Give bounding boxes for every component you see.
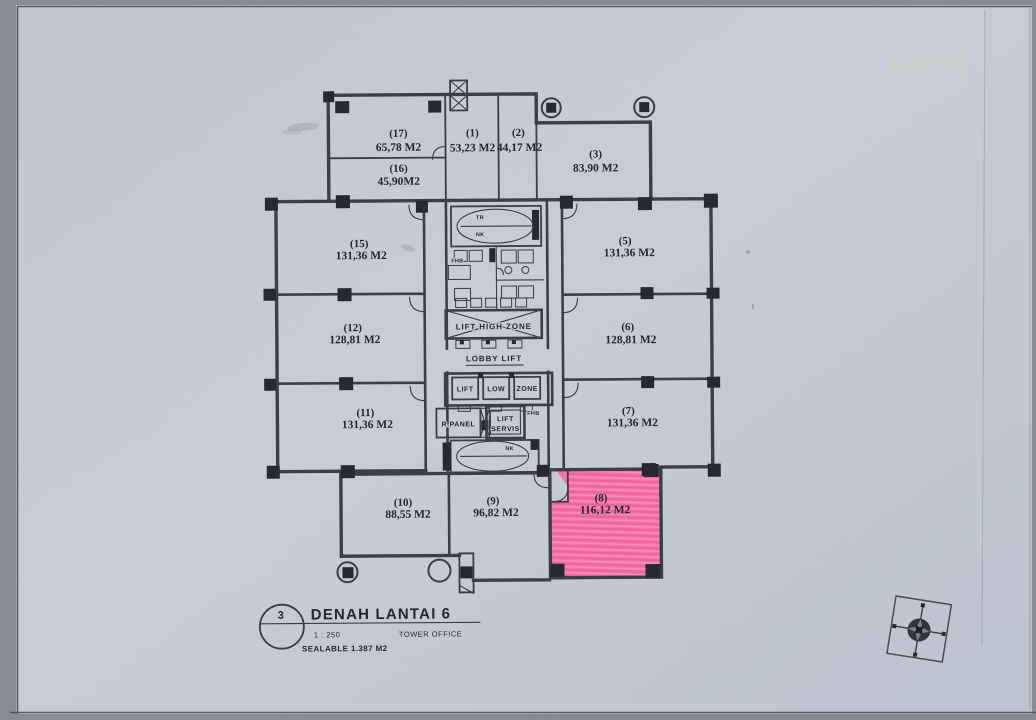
lift-low-zone-word-2: LOW (487, 386, 505, 393)
r-panel-label: R.PANEL (442, 421, 476, 428)
stair-top-label-nk: NK (476, 232, 485, 238)
unit-9-region (449, 473, 550, 581)
unit-6-region (563, 294, 713, 380)
saleable-area-label: SEALABLE 1.387 M2 (302, 644, 388, 654)
lobby-lift-label: LOBBY LIFT (466, 354, 522, 363)
unit-1-region (445, 94, 499, 200)
fhb-right-label: FHB (527, 411, 539, 417)
ink-speck (746, 250, 750, 254)
faded-highlight-mark (890, 55, 968, 72)
unit-10-region (341, 473, 450, 556)
scanned-floorplan-page: TR NK FHB (0, 0, 1036, 720)
sheet-number: 3 (278, 610, 284, 622)
unit-8-region-highlighted (549, 469, 662, 578)
building-label: TOWER OFFICE (399, 629, 462, 638)
drawing-scale: 1 : 250 (314, 630, 340, 639)
unit-17-region (328, 95, 445, 159)
unit-7-region (563, 379, 713, 468)
lift-low-zone-word-3: ZONE (516, 386, 538, 393)
stair-top-label-tr: TR (476, 215, 484, 221)
lift-low-zone-word-1: LIFT (457, 386, 474, 393)
unit-12-region (277, 294, 426, 384)
pencil-smudge (282, 129, 302, 135)
unit-11-region (277, 383, 426, 472)
lift-high-zone-label: LIFT HIGH ZONE (456, 322, 532, 332)
unit-3-region (536, 122, 651, 200)
lift-servis-word-1: LIFT (497, 416, 514, 423)
ink-speck (752, 304, 754, 309)
stair-bottom-label: NK (505, 446, 514, 452)
drawing-title: DENAH LANTAI (311, 606, 437, 624)
unit-5-region (562, 199, 712, 295)
unit-16-region (329, 158, 446, 202)
lift-servis-word-2: SERVIS (491, 426, 520, 433)
unit-2-region (498, 94, 537, 200)
fhb-left-label: FHB (451, 258, 463, 264)
floorplan-drawing: TR NK FHB (0, 0, 1036, 720)
floor-number: 6 (442, 605, 450, 622)
